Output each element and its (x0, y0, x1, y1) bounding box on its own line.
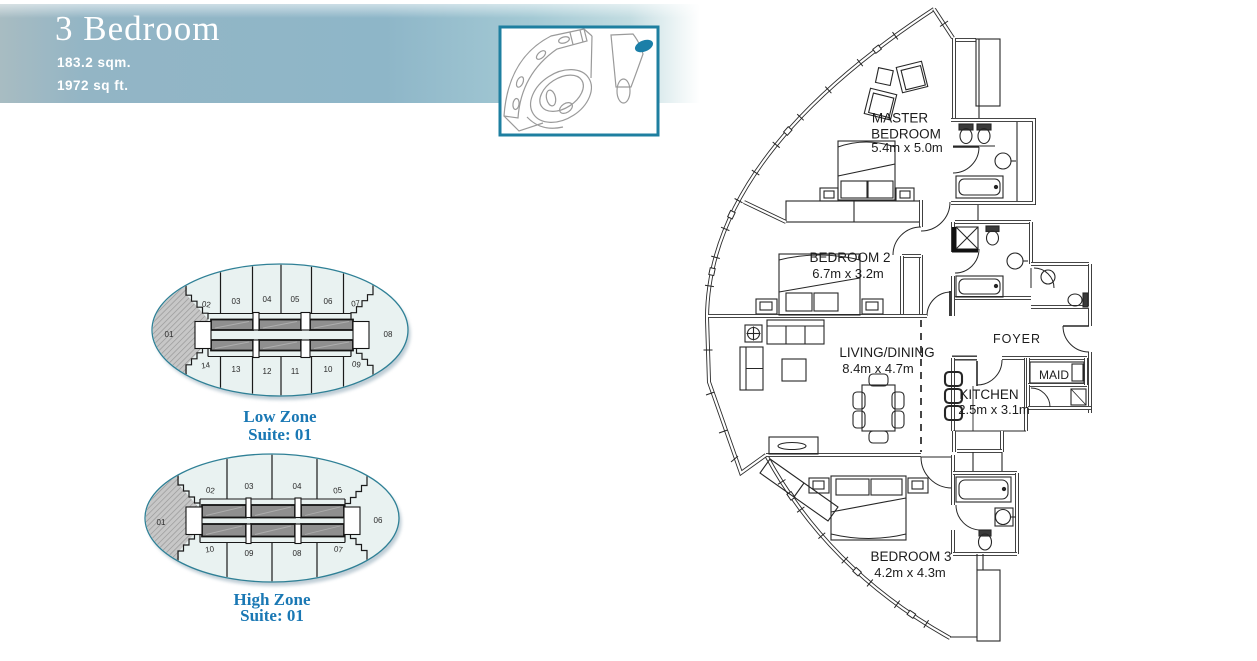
svg-text:04: 04 (293, 482, 302, 491)
svg-text:01: 01 (157, 518, 166, 527)
svg-text:LIVING/DINING: LIVING/DINING (839, 345, 934, 360)
svg-text:MASTER: MASTER (872, 111, 929, 126)
svg-text:05: 05 (333, 485, 344, 495)
svg-text:14: 14 (201, 360, 212, 370)
svg-text:09: 09 (351, 359, 362, 369)
svg-text:Low Zone: Low Zone (243, 407, 317, 426)
svg-text:BEDROOM 2: BEDROOM 2 (809, 250, 890, 265)
svg-text:09: 09 (245, 549, 254, 558)
svg-text:06: 06 (324, 297, 333, 306)
svg-text:MAID: MAID (1039, 368, 1069, 382)
svg-text:6.7m x 3.2m: 6.7m x 3.2m (812, 266, 884, 281)
svg-text:10: 10 (205, 544, 216, 554)
svg-text:KITCHEN: KITCHEN (959, 387, 1018, 402)
svg-text:2.5m x 3.1m: 2.5m x 3.1m (958, 402, 1030, 417)
svg-text:07: 07 (333, 544, 344, 554)
svg-text:02: 02 (205, 485, 216, 495)
svg-text:06: 06 (374, 516, 383, 525)
svg-text:Suite: 01: Suite: 01 (248, 425, 312, 444)
svg-text:8.4m x 4.7m: 8.4m x 4.7m (842, 361, 914, 376)
svg-text:FOYER: FOYER (993, 332, 1041, 346)
svg-text:Suite: 01: Suite: 01 (240, 606, 304, 625)
svg-text:04: 04 (263, 295, 272, 304)
svg-text:10: 10 (324, 365, 333, 374)
svg-text:02: 02 (201, 299, 212, 309)
svg-text:08: 08 (384, 330, 393, 339)
svg-text:11: 11 (291, 367, 300, 376)
svg-text:08: 08 (293, 549, 302, 558)
svg-text:BEDROOM 3: BEDROOM 3 (870, 549, 951, 564)
svg-text:01: 01 (165, 330, 174, 339)
svg-text:4.2m x 4.3m: 4.2m x 4.3m (874, 565, 946, 580)
svg-text:03: 03 (245, 482, 254, 491)
svg-text:5.4m x 5.0m: 5.4m x 5.0m (871, 140, 943, 155)
svg-text:12: 12 (263, 367, 272, 376)
svg-text:05: 05 (291, 295, 300, 304)
svg-text:03: 03 (232, 297, 241, 306)
svg-text:13: 13 (232, 365, 241, 374)
svg-text:07: 07 (351, 298, 362, 308)
